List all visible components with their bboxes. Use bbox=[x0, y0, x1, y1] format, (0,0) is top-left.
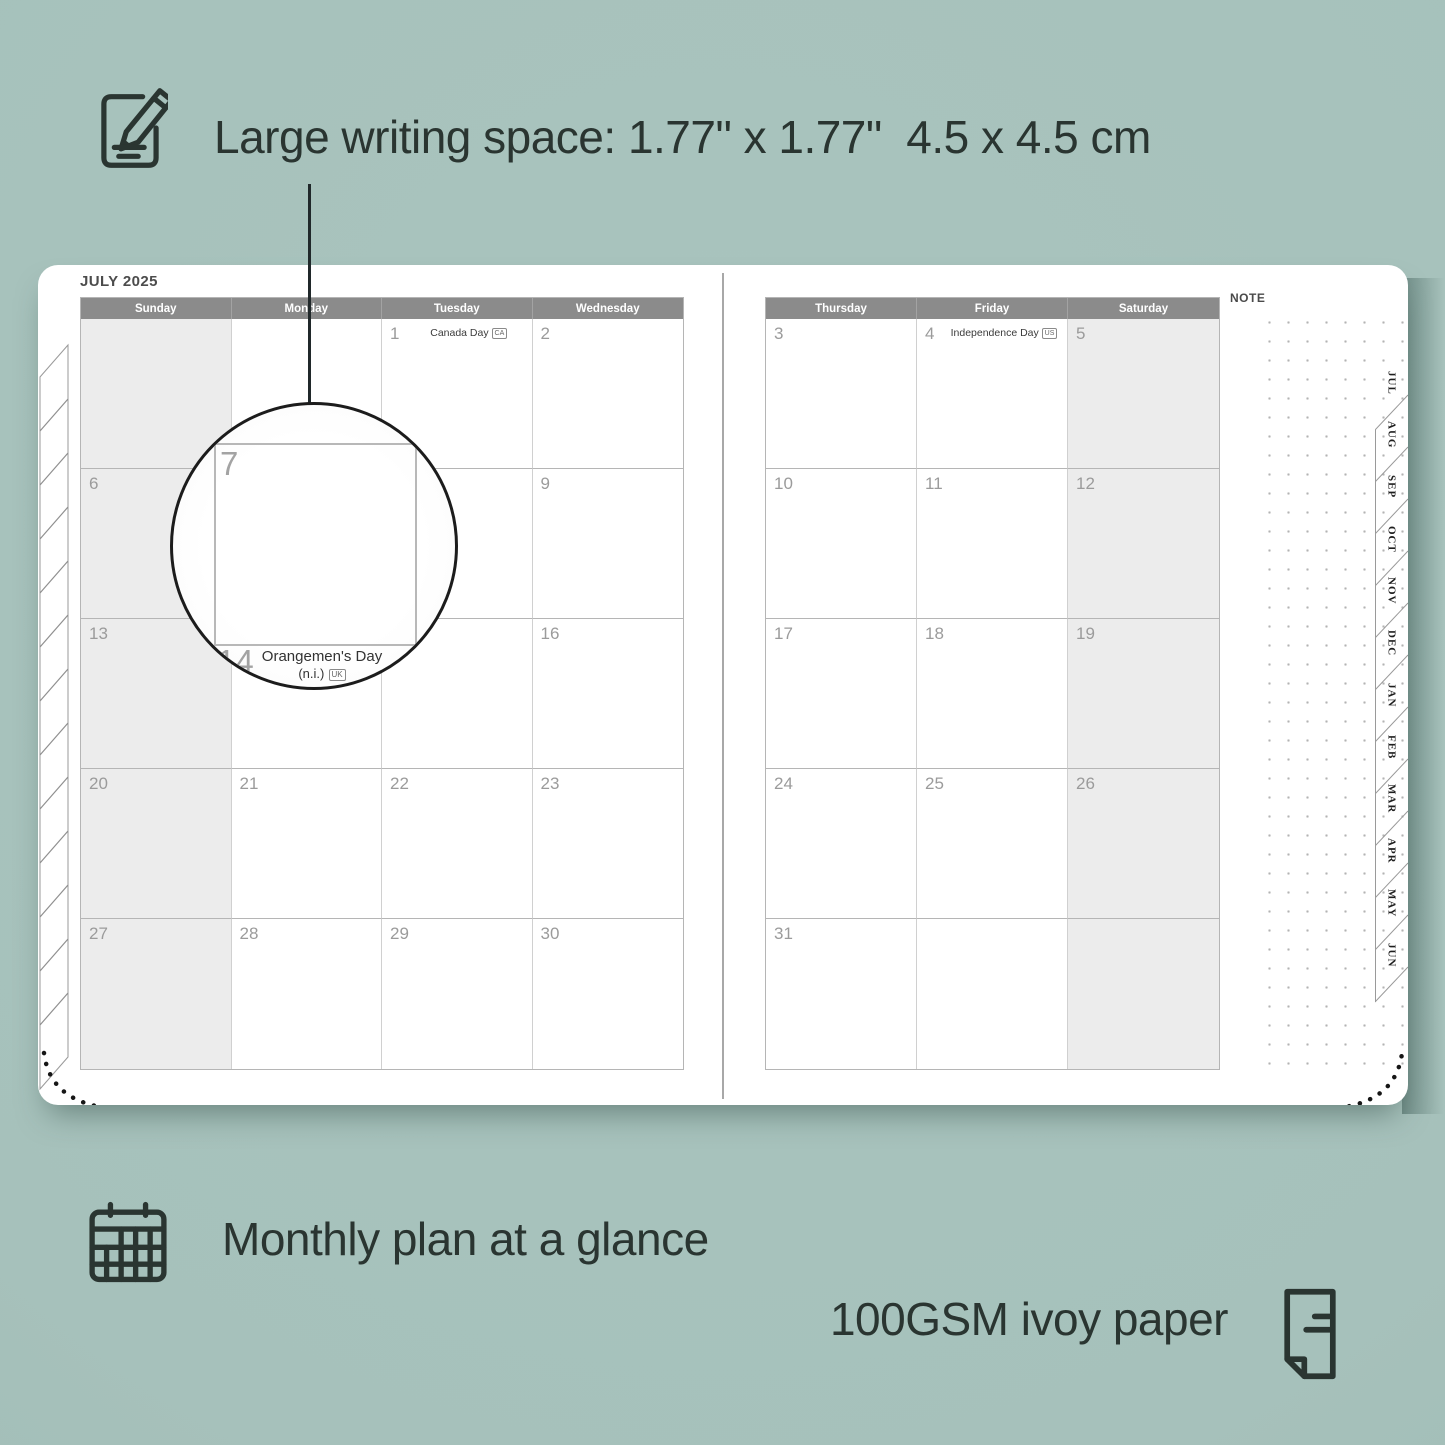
calendar-cell: 11 bbox=[917, 469, 1068, 619]
month-tab-oct: OCT bbox=[1375, 513, 1408, 565]
date-number: 30 bbox=[541, 924, 560, 944]
holiday-region: (n.i.) bbox=[298, 666, 324, 681]
calendar-cell bbox=[917, 919, 1068, 1069]
calendar-cell: 31 bbox=[766, 919, 917, 1069]
date-number: 1 bbox=[390, 324, 399, 344]
holiday-label: Canada Day CA bbox=[410, 327, 528, 341]
planner-spread: JULY 2025 SundayMondayTuesdayWednesday1C… bbox=[38, 265, 1408, 1105]
date-number: 18 bbox=[925, 624, 944, 644]
month-tab-jun: JUN bbox=[1375, 929, 1408, 981]
date-number: 12 bbox=[1076, 474, 1095, 494]
calendar-cell: 29 bbox=[382, 919, 533, 1069]
calendar-cell: 21 bbox=[232, 769, 383, 919]
pointer-line bbox=[308, 184, 311, 406]
date-number: 29 bbox=[390, 924, 409, 944]
date-number: 25 bbox=[925, 774, 944, 794]
date-number: 24 bbox=[774, 774, 793, 794]
calendar-cell: 17 bbox=[766, 619, 917, 769]
paper-sheet-icon bbox=[1272, 1284, 1348, 1389]
country-badge: CA bbox=[492, 328, 508, 339]
spine-divider bbox=[722, 273, 724, 1099]
left-page-edges bbox=[38, 335, 70, 1105]
calendar-grid-icon bbox=[86, 1200, 170, 1289]
date-number: 10 bbox=[774, 474, 793, 494]
calendar-cell: 4Independence Day US bbox=[917, 319, 1068, 469]
note-label: NOTE bbox=[1230, 291, 1265, 305]
date-number: 13 bbox=[89, 624, 108, 644]
date-number: 28 bbox=[240, 924, 259, 944]
day-header: Monday bbox=[232, 298, 383, 319]
calendar-cell: 9 bbox=[533, 469, 684, 619]
date-number: 3 bbox=[774, 324, 783, 344]
calendar-cell: 10 bbox=[766, 469, 917, 619]
day-header: Saturday bbox=[1068, 298, 1219, 319]
date-number: 2 bbox=[541, 324, 550, 344]
calendar-cell: 3 bbox=[766, 319, 917, 469]
month-tab-may: MAY bbox=[1375, 877, 1408, 929]
month-tab-jan: JAN bbox=[1375, 669, 1408, 721]
day-header: Thursday bbox=[766, 298, 917, 319]
calendar-cell: 30 bbox=[533, 919, 684, 1069]
date-number: 21 bbox=[240, 774, 259, 794]
date-number: 27 bbox=[89, 924, 108, 944]
calendar-cell: 18 bbox=[917, 619, 1068, 769]
pencil-edit-icon bbox=[86, 74, 168, 184]
day-header: Tuesday bbox=[382, 298, 533, 319]
right-page-grid: ThursdayFridaySaturday34Independence Day… bbox=[765, 297, 1220, 1070]
magnified-holiday-label: Orangemen's Day (n.i.) UK bbox=[229, 648, 415, 683]
calendar-cell: 26 bbox=[1068, 769, 1219, 919]
top-annotation: Large writing space: 1.77" x 1.77" 4.5 x… bbox=[214, 110, 1151, 164]
month-tab-dec: DEC bbox=[1375, 617, 1408, 669]
date-number: 31 bbox=[774, 924, 793, 944]
magnified-day-cell bbox=[214, 443, 417, 646]
bottom-left-annotation: Monthly plan at a glance bbox=[222, 1212, 709, 1266]
date-number: 22 bbox=[390, 774, 409, 794]
month-tab-jul: JUL bbox=[1375, 357, 1408, 409]
calendar-cell: 20 bbox=[81, 769, 232, 919]
calendar-cell: 23 bbox=[533, 769, 684, 919]
country-badge: UK bbox=[329, 669, 346, 681]
date-number: 4 bbox=[925, 324, 934, 344]
date-number: 26 bbox=[1076, 774, 1095, 794]
calendar-cell: 24 bbox=[766, 769, 917, 919]
product-image: Large writing space: 1.77" x 1.77" 4.5 x… bbox=[0, 0, 1445, 1445]
calendar-cell: 16 bbox=[533, 619, 684, 769]
month-tabs: JULAUGSEPOCTNOVDECJANFEBMARAPRMAYJUN bbox=[1375, 265, 1408, 1105]
magnified-date-number: 7 bbox=[220, 445, 238, 483]
date-number: 23 bbox=[541, 774, 560, 794]
calendar-cell: 5 bbox=[1068, 319, 1219, 469]
date-number: 6 bbox=[89, 474, 98, 494]
country-badge: US bbox=[1042, 328, 1058, 339]
calendar-cell: 12 bbox=[1068, 469, 1219, 619]
left-page-grid: SundayMondayTuesdayWednesday1Canada Day … bbox=[80, 297, 684, 1070]
month-tab-sep: SEP bbox=[1375, 461, 1408, 513]
day-header: Wednesday bbox=[533, 298, 684, 319]
calendar-cell: 22 bbox=[382, 769, 533, 919]
date-number: 5 bbox=[1076, 324, 1085, 344]
calendar-cell: 2 bbox=[533, 319, 684, 469]
date-number: 20 bbox=[89, 774, 108, 794]
month-title: JULY 2025 bbox=[80, 273, 158, 290]
day-header: Sunday bbox=[81, 298, 232, 319]
magnifier-circle: 7 14 Orangemen's Day (n.i.) UK bbox=[170, 402, 458, 690]
day-header: Friday bbox=[917, 298, 1068, 319]
calendar-cell bbox=[1068, 919, 1219, 1069]
calendar-cell: 19 bbox=[1068, 619, 1219, 769]
calendar-cell: 28 bbox=[232, 919, 383, 1069]
date-number: 17 bbox=[774, 624, 793, 644]
month-tab-mar: MAR bbox=[1375, 773, 1408, 825]
holiday-name: Orangemen's Day bbox=[262, 648, 382, 665]
month-tab-feb: FEB bbox=[1375, 721, 1408, 773]
date-number: 11 bbox=[925, 474, 943, 494]
calendar-cell: 27 bbox=[81, 919, 232, 1069]
month-tab-nov: NOV bbox=[1375, 565, 1408, 617]
date-number: 19 bbox=[1076, 624, 1095, 644]
holiday-label: Independence Day US bbox=[945, 327, 1063, 341]
date-number: 9 bbox=[541, 474, 550, 494]
date-number: 16 bbox=[541, 624, 560, 644]
month-tab-apr: APR bbox=[1375, 825, 1408, 877]
month-tab-aug: AUG bbox=[1375, 409, 1408, 461]
bottom-right-annotation: 100GSM ivoy paper bbox=[830, 1292, 1228, 1346]
calendar-cell: 25 bbox=[917, 769, 1068, 919]
